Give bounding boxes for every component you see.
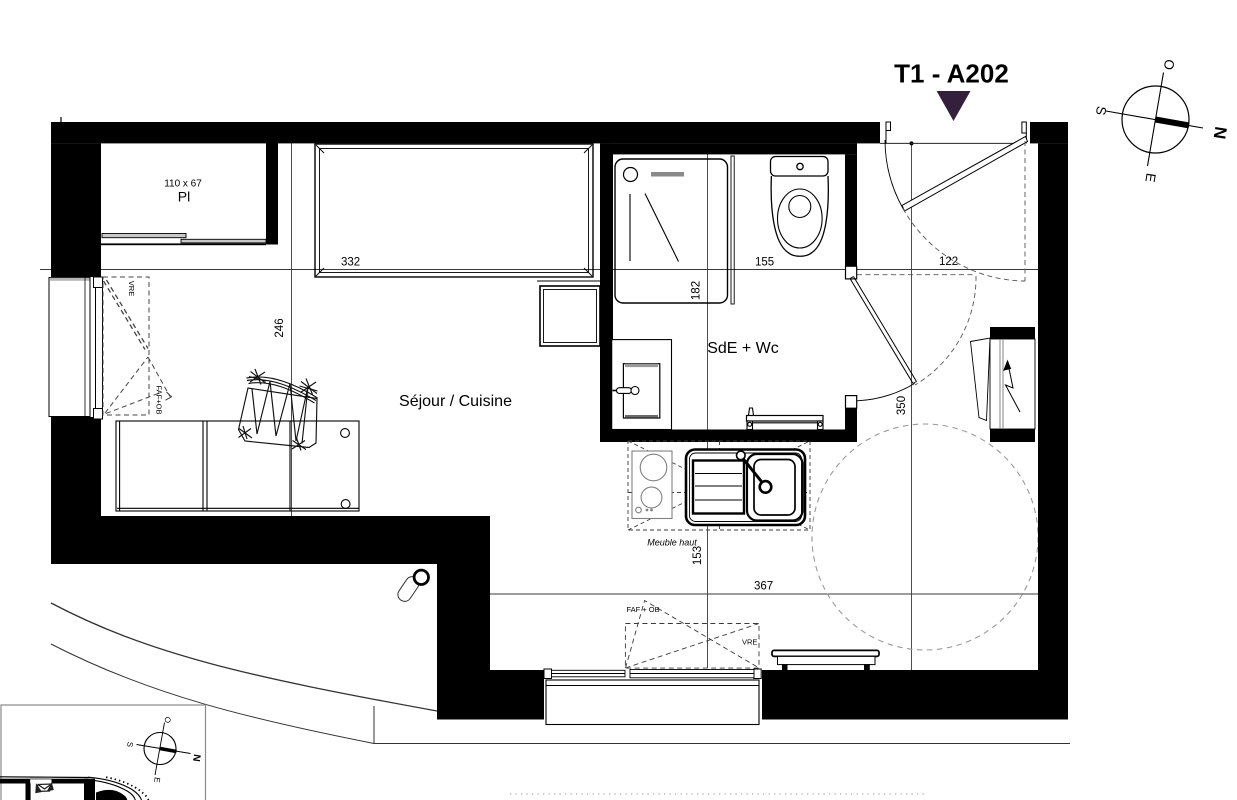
- svg-text:Séjour / Cuisine: Séjour / Cuisine: [399, 393, 512, 410]
- svg-text:350: 350: [896, 396, 908, 415]
- svg-text:SdE + Wc: SdE + Wc: [707, 340, 779, 357]
- svg-text:182: 182: [691, 281, 703, 300]
- svg-text:155: 155: [755, 257, 774, 269]
- svg-text:153: 153: [692, 546, 704, 565]
- svg-text:VRE: VRE: [742, 638, 757, 647]
- svg-text:T1 - A202: T1 - A202: [894, 59, 1009, 89]
- svg-text:367: 367: [754, 581, 773, 593]
- svg-text:VRE: VRE: [127, 281, 136, 296]
- svg-text:FAF+OB: FAF+OB: [155, 386, 164, 415]
- svg-text:Pl: Pl: [178, 189, 190, 205]
- svg-text:246: 246: [274, 318, 286, 337]
- svg-text:122: 122: [939, 256, 958, 268]
- svg-text:Meuble haut: Meuble haut: [647, 538, 697, 548]
- svg-text:FAF + OB: FAF + OB: [627, 605, 660, 614]
- svg-text:332: 332: [341, 257, 360, 269]
